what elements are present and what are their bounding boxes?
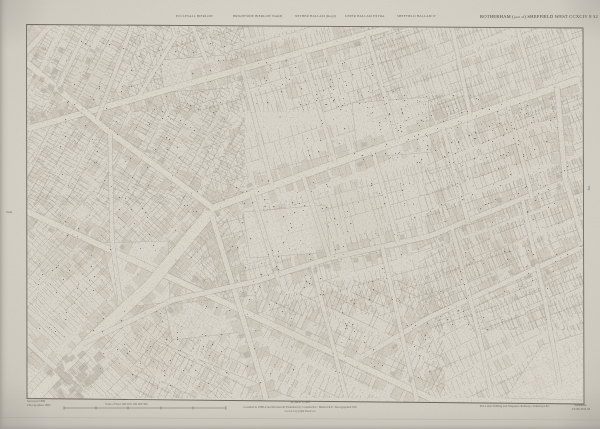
svg-text:ECCLESALL BIERLOW: ECCLESALL BIERLOW	[176, 14, 214, 18]
svg-text:Levelled in 1888-9 and Revised: Levelled in 1888-9 and Revised & Examine…	[244, 405, 357, 409]
svg-text:Scale of Feet 100 50 0: Scale of Feet 100 50 0 100 200 300	[105, 402, 148, 406]
svg-text:BRIGHTSIDE BIERLOW WARD: BRIGHTSIDE BIERLOW WARD	[233, 14, 283, 18]
svg-text:UPPER HALLAM EXTRA: UPPER HALLAM EXTRA	[345, 14, 385, 18]
svg-text:SHEFFIELD HALLAM W: SHEFFIELD HALLAM W	[397, 14, 437, 18]
svg-text:NETHER HALLAM (Regd): NETHER HALLAM (Regd)	[295, 14, 336, 18]
svg-text:Bdy: Bdy	[587, 186, 590, 191]
svg-text:Price One Shilling and Sixpenc: Price One Shilling and Sixpence. Railway…	[480, 404, 550, 408]
svg-text:SCALE 1/500: SCALE 1/500	[290, 400, 310, 404]
